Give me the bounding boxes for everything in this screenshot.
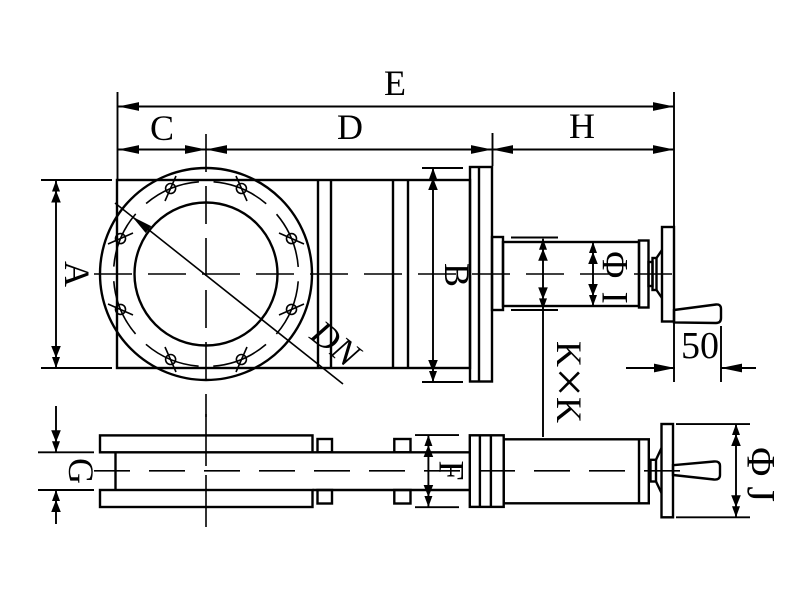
svg-text:K: K xyxy=(549,341,589,367)
svg-text:DN: DN xyxy=(303,312,369,376)
svg-text:A: A xyxy=(57,261,97,287)
svg-text:×: × xyxy=(540,367,597,396)
svg-text:G: G xyxy=(61,458,101,484)
svg-text:B: B xyxy=(437,263,477,287)
svg-text:C: C xyxy=(150,108,174,148)
svg-text:D: D xyxy=(337,107,363,147)
svg-text:50: 50 xyxy=(681,325,719,367)
svg-text:F: F xyxy=(432,460,472,480)
svg-text:Φ I: Φ I xyxy=(594,251,635,306)
svg-text:H: H xyxy=(569,106,595,146)
svg-text:K: K xyxy=(549,397,589,423)
svg-text:Φ J: Φ J xyxy=(739,447,784,502)
svg-text:E: E xyxy=(384,63,406,103)
